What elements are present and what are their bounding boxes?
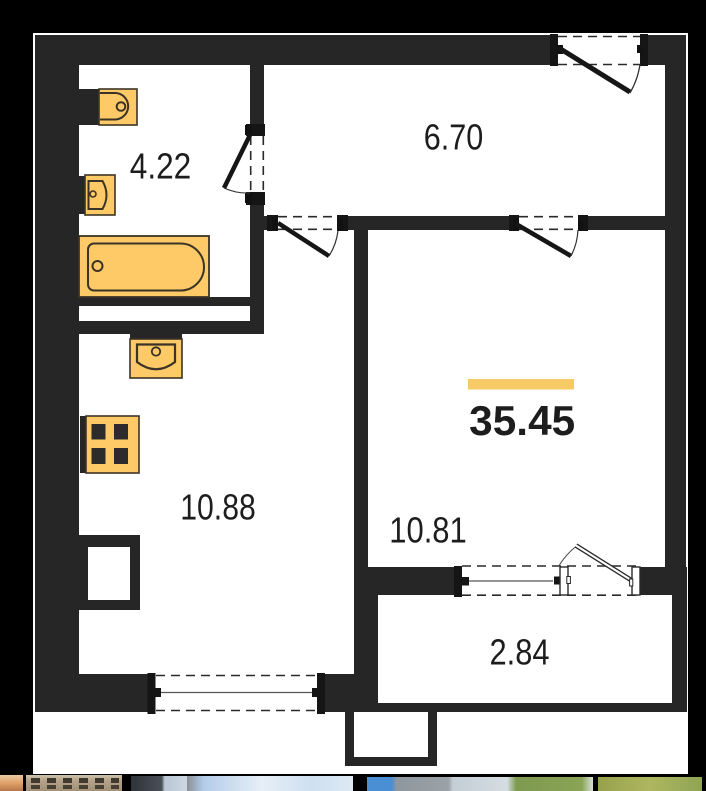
svg-text:2.84: 2.84 [490,632,550,673]
svg-text:6.70: 6.70 [424,117,484,158]
svg-text:10.88: 10.88 [180,487,256,528]
svg-text:35.45: 35.45 [469,397,575,444]
svg-text:10.81: 10.81 [389,510,467,551]
svg-text:4.22: 4.22 [130,146,192,187]
